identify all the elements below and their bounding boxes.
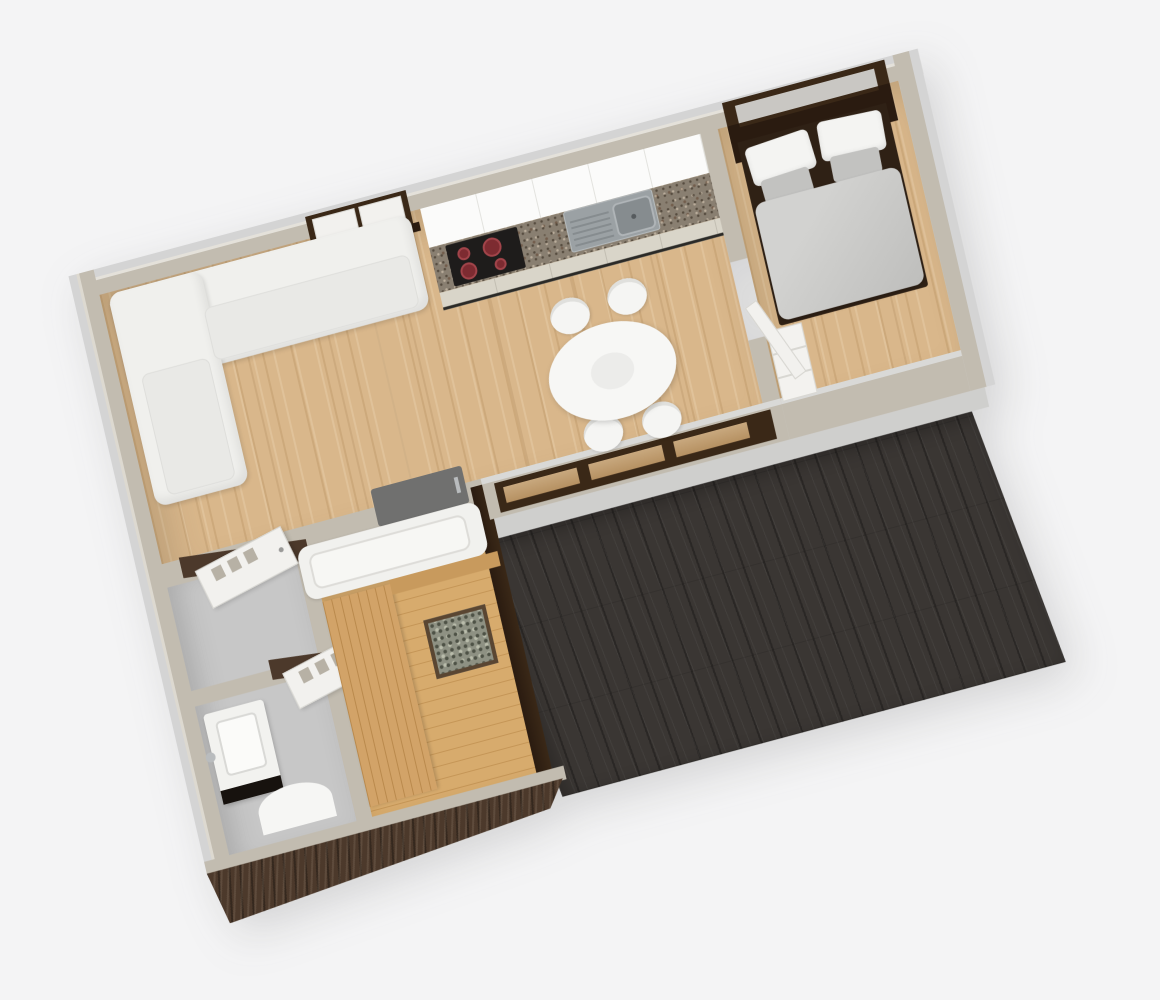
door-window <box>314 658 329 675</box>
door-knob <box>278 546 285 553</box>
burner <box>481 235 504 258</box>
floor-plan-canvas <box>0 0 1160 1000</box>
table-pedestal <box>587 348 638 395</box>
door-window <box>298 667 313 684</box>
sink-drainboard <box>569 207 614 247</box>
burner <box>456 246 471 262</box>
apartment-3d-plan <box>78 54 1075 916</box>
sink-bowl <box>611 194 657 238</box>
burner <box>459 261 479 282</box>
door-window <box>227 556 242 573</box>
sink-drain-hole <box>631 213 637 219</box>
washbasin-bowl <box>215 711 268 777</box>
shower-fixture <box>454 477 461 494</box>
door-window <box>243 547 258 564</box>
door-window <box>211 564 226 581</box>
burner <box>493 257 507 272</box>
